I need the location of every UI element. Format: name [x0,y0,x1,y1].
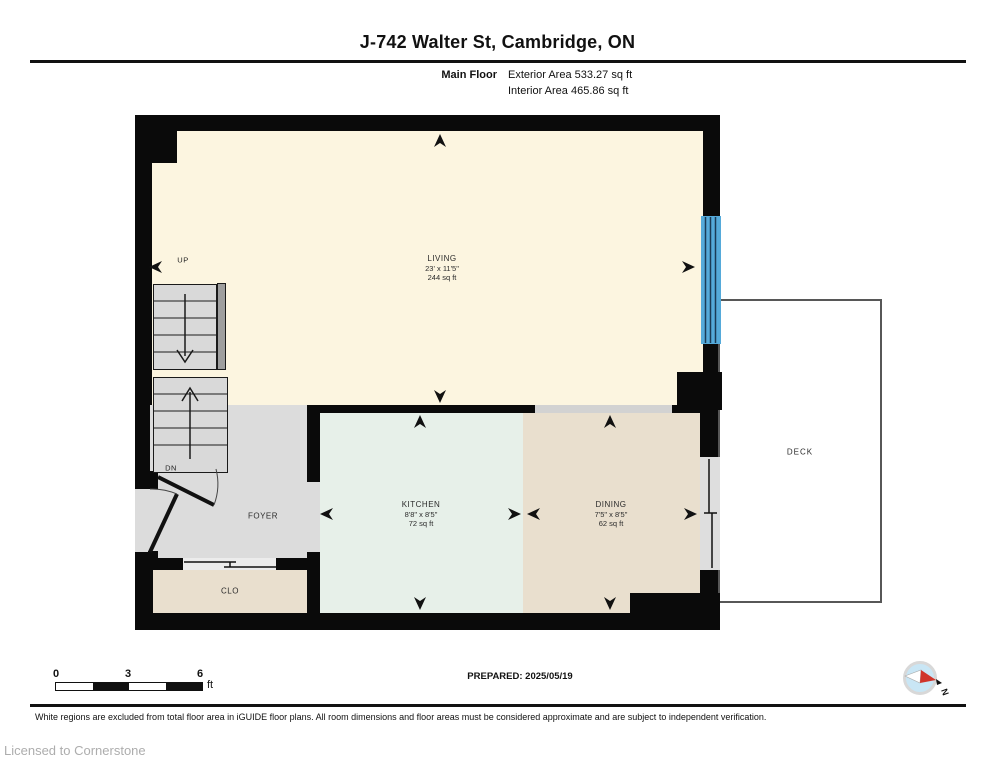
scale-segment [129,683,166,690]
living-area: 244 sq ft [425,273,459,283]
deck-label: DECK [787,447,813,457]
page-title: J-742 Walter St, Cambridge, ON [0,32,995,53]
disclaimer-text: White regions are excluded from total fl… [35,712,965,722]
scale-segment [56,683,93,690]
scale-unit-label: ft [207,679,213,691]
half-wall-living-dining [535,405,672,413]
scale-segment [93,683,130,690]
wall-step-bottom-right [630,593,720,630]
wall-notch-top-left [135,115,177,163]
dining-dims: 7'5" x 8'5" [595,509,628,519]
living-dims: 23' x 11'5" [425,263,459,273]
front-door-opening [135,489,151,552]
stairs-upper-flight [153,284,217,370]
closet-label: CLO [221,586,239,596]
window-living [701,216,721,344]
compass-icon: N [896,656,952,708]
exterior-area-label: Exterior Area 533.27 sq ft [508,69,632,81]
floor-name-label: Main Floor [297,69,497,81]
footer-divider [30,704,966,707]
living-label: LIVING 23' x 11'5" 244 sq ft [425,254,459,283]
stairs-railing [217,283,226,370]
scale-tick-0: 0 [46,668,66,680]
header-divider [30,60,966,63]
closet-sliding-door [183,558,276,570]
deck-sliding-door [700,457,720,570]
interior-area-label: Interior Area 465.86 sq ft [508,85,628,97]
prepared-date-label: PREPARED: 2025/05/19 [430,671,610,682]
kitchen-area: 72 sq ft [402,519,441,529]
living-name: LIVING [425,254,459,264]
closet-jamb-right [276,558,307,570]
scale-bar [55,682,203,691]
wall-block-right [677,372,722,410]
compass-north-label: N [939,687,951,697]
stairs-up-label: UP [177,256,188,265]
kitchen-dims: 8'8" x 8'5" [402,509,441,519]
dining-name: DINING [595,500,628,510]
stairs-lower-flight [153,377,228,473]
closet-jamb-left [152,558,183,570]
license-text: Licensed to Cornerstone [4,743,146,758]
scale-segment [166,683,203,690]
stairs-down-label: DN [165,464,177,473]
kitchen-label: KITCHEN 8'8" x 8'5" 72 sq ft [402,500,441,529]
kitchen-name: KITCHEN [402,500,441,510]
opening-foyer-kitchen [307,482,320,552]
floorplan-page: J-742 Walter St, Cambridge, ON Main Floo… [0,0,995,768]
dining-label: DINING 7'5" x 8'5" 62 sq ft [595,500,628,529]
dining-area: 62 sq ft [595,519,628,529]
scale-tick-3: 3 [118,668,138,680]
door-jamb-upper [148,471,158,489]
foyer-label: FOYER [248,511,278,521]
